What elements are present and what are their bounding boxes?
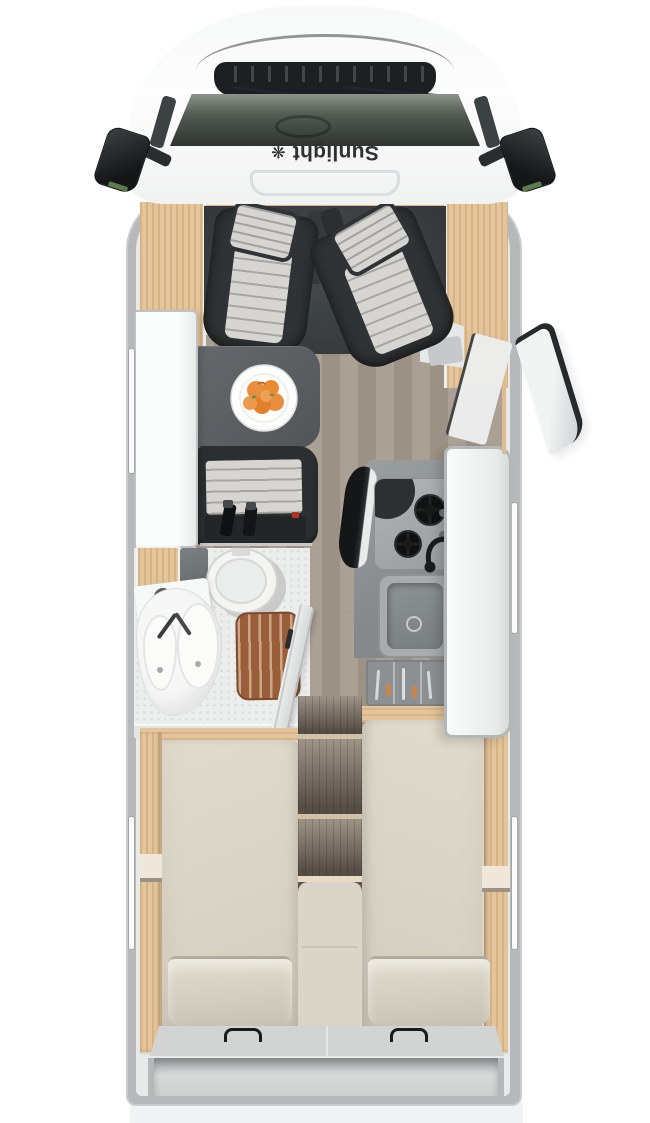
toilet-lid bbox=[215, 558, 267, 604]
step-3 bbox=[298, 819, 362, 876]
utensil-2 bbox=[402, 668, 405, 700]
hood-emboss bbox=[250, 170, 400, 196]
fridge-door-open bbox=[444, 446, 512, 738]
utensil-handle-1 bbox=[386, 684, 391, 696]
window-right-mid bbox=[511, 502, 518, 634]
stove-corner-disc bbox=[374, 478, 415, 519]
grab-handle-right bbox=[390, 1028, 428, 1042]
wardrobe-door-open-left bbox=[134, 310, 198, 548]
bench-trim bbox=[200, 543, 312, 546]
step-1 bbox=[298, 696, 362, 734]
rear-garage bbox=[148, 1058, 504, 1096]
brand-text: Sunlight bbox=[292, 140, 378, 164]
toilet-hinge bbox=[232, 548, 250, 556]
drain-left bbox=[157, 667, 163, 673]
sink-drain bbox=[406, 616, 422, 632]
bed-steps bbox=[298, 696, 362, 1032]
driver-seat bbox=[200, 206, 320, 358]
basin-left bbox=[143, 615, 177, 691]
motorhome-floorplan-top-view: Sunlight ❋ bbox=[0, 0, 650, 1123]
cabinet-seam bbox=[302, 946, 358, 948]
mirror-left bbox=[100, 122, 174, 196]
pillow-left bbox=[168, 956, 292, 1026]
vent-slots bbox=[220, 66, 430, 82]
bedroom-wood-trim-left bbox=[140, 732, 162, 1052]
window-right-rear bbox=[511, 816, 518, 950]
drain-right bbox=[195, 661, 201, 667]
toilet bbox=[206, 548, 278, 614]
utensil-1 bbox=[375, 670, 380, 700]
grab-handle-left bbox=[224, 1028, 262, 1042]
window-left-front bbox=[128, 348, 135, 474]
pillow-right bbox=[368, 956, 490, 1026]
brand-decal: Sunlight ❋ bbox=[240, 139, 410, 165]
bench-buckle-red bbox=[292, 512, 299, 518]
oranges bbox=[243, 380, 284, 414]
foot-band-seam bbox=[326, 1026, 328, 1056]
bed-center-cabinet bbox=[298, 882, 362, 1032]
belt-latch-left bbox=[223, 500, 233, 508]
belt-latch-right bbox=[246, 502, 256, 510]
kitchen-sink bbox=[378, 574, 452, 658]
dinette-bench bbox=[196, 446, 318, 546]
cutlery-drawer-open bbox=[366, 660, 454, 706]
step-2 bbox=[298, 739, 362, 814]
utensil-handle-2 bbox=[412, 686, 417, 698]
window-left-rear bbox=[128, 816, 135, 950]
entry-door-open bbox=[514, 318, 587, 457]
sunlight-logo-icon: ❋ bbox=[271, 144, 285, 161]
bedroom-shelf-right bbox=[482, 866, 510, 892]
mirror-right bbox=[476, 122, 550, 196]
utensil-3 bbox=[427, 671, 432, 699]
basin-right bbox=[177, 603, 219, 689]
dashboard-shadow bbox=[275, 115, 331, 138]
fruit-plate bbox=[228, 362, 300, 434]
burner-small bbox=[393, 529, 423, 559]
